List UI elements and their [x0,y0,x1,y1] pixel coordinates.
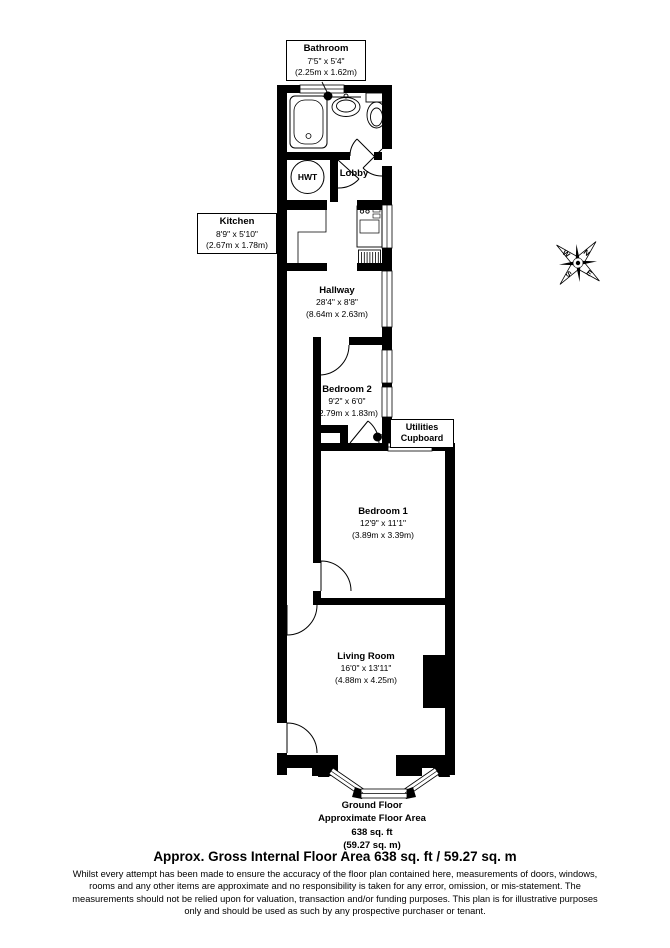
disclaimer-line-2: rooms and any other items are approximat… [0,880,670,892]
kitchen-label-box: Kitchen 8'9" x 5'10" (2.67m x 1.78m) [197,213,277,254]
wall-segment [349,337,392,345]
bay-corner-right [396,755,422,776]
bedroom1-name: Bedroom 1 [323,505,443,518]
gross-floor-area-title: Approx. Gross Internal Floor Area 638 sq… [0,849,670,864]
bedroom1-dims-metric: (3.89m x 3.39m) [323,530,443,542]
floor-summary-line3: 638 sq. ft [292,826,452,839]
living-room-door-bottom [287,723,317,753]
hallway-name: Hallway [277,284,397,297]
compass-rose: N E S W [539,224,618,303]
kitchen-label-dot [278,230,286,238]
bathroom-label-box: Bathroom 7'5" x 5'4" (2.25m x 1.62m) [286,40,366,81]
bedroom2-door [319,345,349,375]
utilities-label-dot [374,433,382,441]
living-room-dims-imperial: 16'0" x 13'11" [306,663,426,675]
wall-segment [313,443,388,451]
utilities-cupboard-label-box: Utilities Cupboard [390,419,454,448]
sink [331,94,361,117]
hwt-label: HWT [298,172,318,182]
hallway-dims-metric: (8.64m x 2.63m) [277,309,397,321]
bathtub [290,96,327,148]
disclaimer-line-4: only and should be used as such by any p… [0,905,670,917]
bathroom-door [350,139,374,156]
bathroom-label-dot [324,92,332,100]
bedroom2-dims-imperial: 9'2" x 6'0" [287,396,407,408]
wall-segment [287,263,327,271]
floorplan-page: N E S W HWT Bathroom 7'5" x 5'4" (2.25m … [0,0,670,948]
living-room-label: Living Room 16'0" x 13'11" (4.88m x 4.25… [306,650,426,687]
living-room-name: Living Room [306,650,426,663]
kitchen-name: Kitchen [201,216,273,229]
disclaimer-line-1: Whilst every attempt has been made to en… [0,868,670,880]
wall-segment [445,443,455,775]
floor-summary-line2: Approximate Floor Area [292,812,452,825]
hallway-dims-imperial: 28'4" x 8'8" [277,297,397,309]
bathroom-dims-metric: (2.25m x 1.62m) [290,67,362,78]
living-room-door-top [287,605,317,635]
wall-segment [357,200,382,210]
floor-summary-line1: Ground Floor [292,799,452,812]
bedroom1-door [321,561,351,591]
kitchen-dims-imperial: 8'9" x 5'10" [201,229,273,240]
cooker [357,206,382,267]
bedroom2-dims-metric: (2.79m x 1.83m) [287,408,407,420]
bedroom1-dims-imperial: 12'9" x 11'1" [323,518,443,530]
disclaimer-text: Whilst every attempt has been made to en… [0,868,670,917]
back-door-opening [382,149,392,166]
wall-segment [287,200,327,210]
kitchen-counter [298,210,326,263]
lobby-label: Lobby [335,167,373,180]
bedroom1-label: Bedroom 1 12'9" x 11'1" (3.89m x 3.39m) [323,505,443,542]
utilities-line1: Utilities [394,422,450,433]
bathroom-name: Bathroom [290,43,362,56]
utilities-line2: Cupboard [394,433,450,444]
chimney-breast [423,655,445,708]
bathroom-dims-imperial: 7'5" x 5'4" [290,56,362,67]
hallway-label: Hallway 28'4" x 8'8" (8.64m x 2.63m) [277,284,397,321]
bedroom2-name: Bedroom 2 [287,383,407,396]
wall-segment [277,85,287,723]
wall-segment [287,152,350,160]
bedroom2-label: Bedroom 2 9'2" x 6'0" (2.79m x 1.83m) [287,383,407,420]
wall-segment [313,425,342,433]
disclaimer-line-3: measurements should not be relied upon f… [0,893,670,905]
ground-floor-summary: Ground Floor Approximate Floor Area 638 … [292,799,452,852]
living-room-dims-metric: (4.88m x 4.25m) [306,675,426,687]
wall-segment [313,598,455,605]
kitchen-dims-metric: (2.67m x 1.78m) [201,240,273,251]
